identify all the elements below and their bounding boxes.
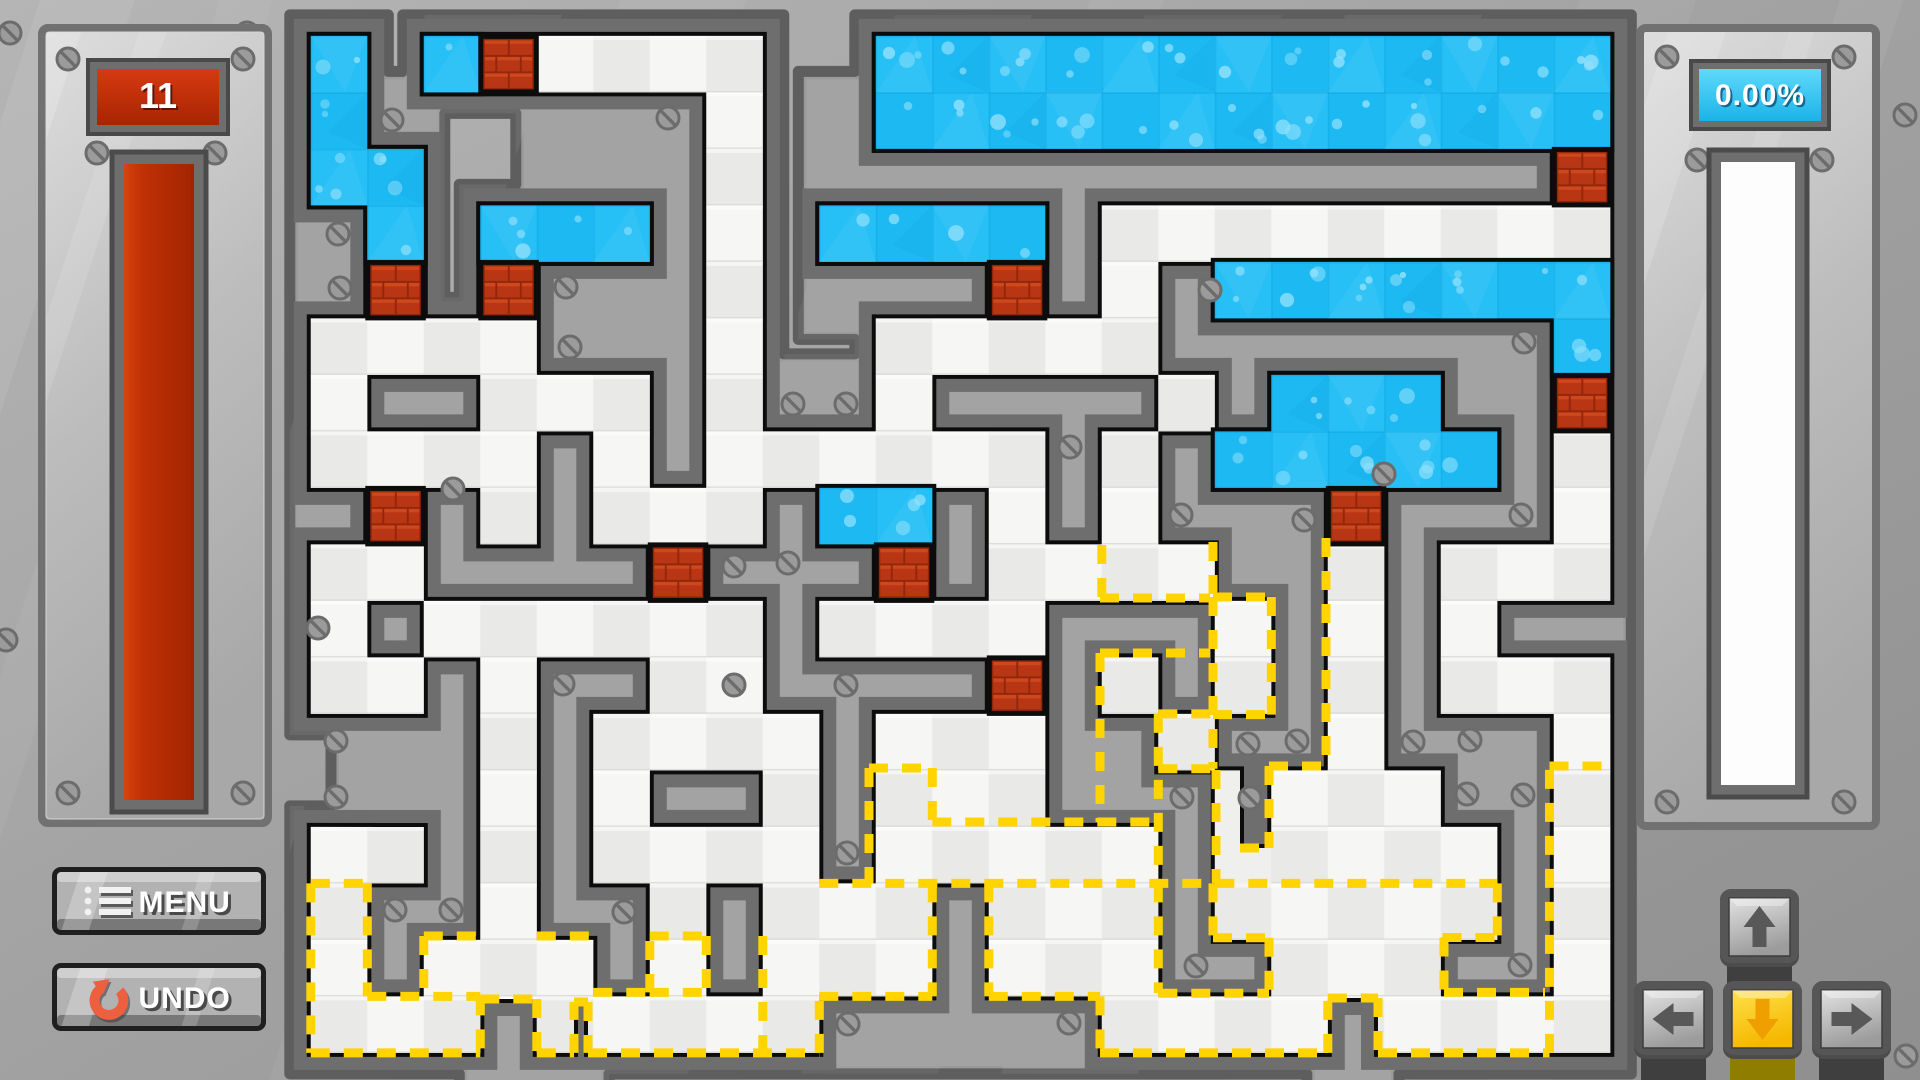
svg-text:11: 11 xyxy=(139,75,177,116)
svg-text:0.00%: 0.00% xyxy=(1715,79,1805,112)
svg-text:MENU: MENU xyxy=(139,886,231,919)
svg-text:UNDO: UNDO xyxy=(139,982,231,1015)
